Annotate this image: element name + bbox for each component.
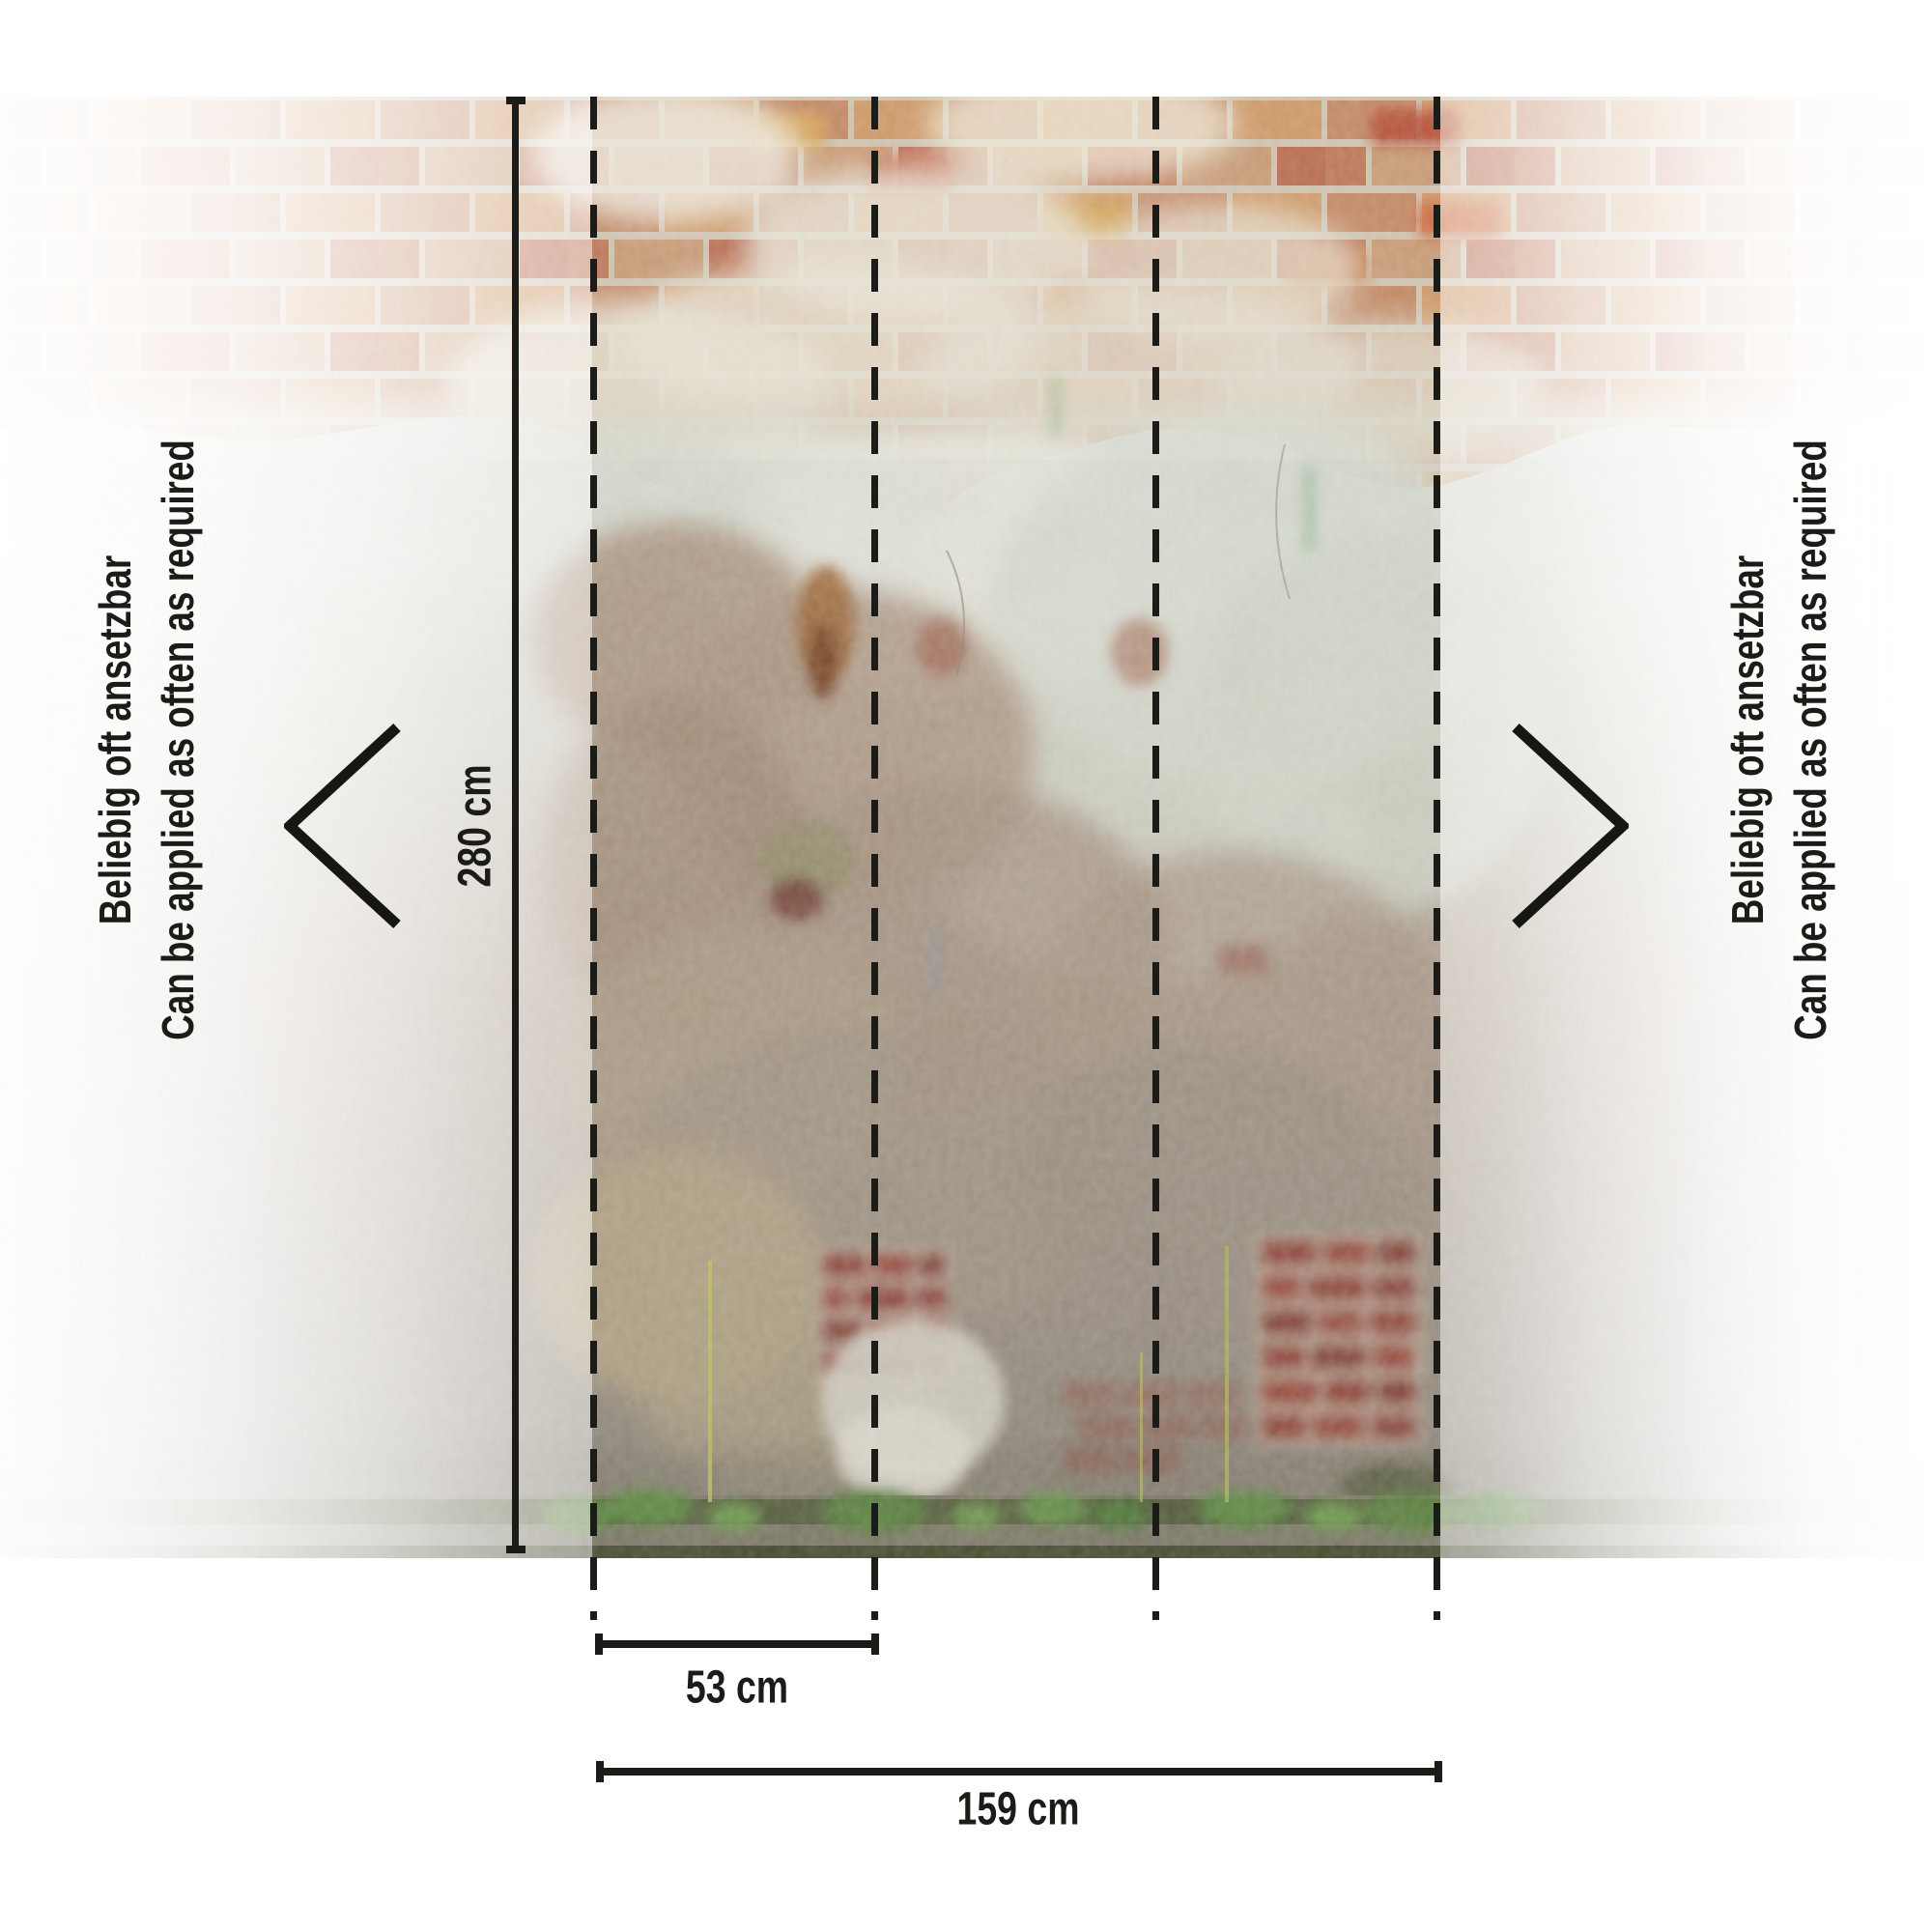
height-dimension-cap-bottom [506,1546,526,1553]
panel-seam-line-4 [1434,97,1440,1620]
total-width-tick-right [1435,1761,1442,1782]
strip-width-label: 53 cm [686,1662,788,1715]
strip-width-tick-right [871,1634,879,1655]
height-dimension-cap-top [506,97,526,104]
total-width-dimension-line [600,1768,1438,1776]
total-width-tick-left [596,1761,604,1782]
repeat-label-left: Beliebig oft ansetzbar Can be applied as… [84,440,210,1040]
total-width-label: 159 cm [957,1783,1080,1836]
repeat-label-left-en: Can be applied as often as required [147,440,210,1040]
repeat-label-left-de: Beliebig oft ansetzbar [84,440,147,1040]
chevron-left-icon [284,723,402,929]
height-dimension-line [512,97,519,1553]
panel-seam-line-3 [1152,97,1159,1620]
repeat-label-right: Beliebig oft ansetzbar Can be applied as… [1717,440,1842,1040]
strip-width-dimension-line [599,1640,875,1648]
repeat-label-right-en: Can be applied as often as required [1779,440,1842,1040]
chevron-right-icon [1511,723,1629,929]
wallpaper-dimension-diagram: 280 cm 53 cm 159 cm Beliebig oft ansetzb… [0,0,1932,1932]
repeat-label-right-de: Beliebig oft ansetzbar [1717,440,1779,1040]
panel-seam-line-1 [590,97,597,1620]
panel-seam-line-2 [871,97,878,1620]
strip-width-tick-left [595,1634,603,1655]
height-dimension-label: 280 cm [449,765,502,888]
